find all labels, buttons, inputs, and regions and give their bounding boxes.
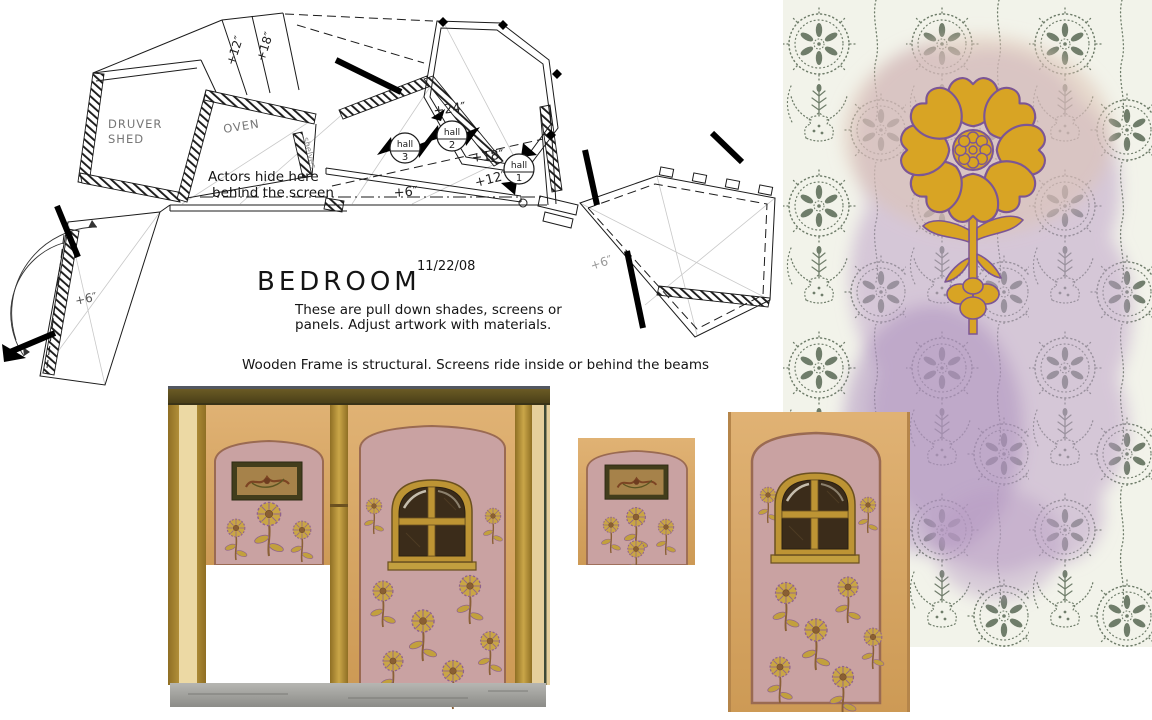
- center-post-joint: [330, 504, 348, 507]
- hall-number: 3: [402, 152, 408, 163]
- wall-elevation-right: [728, 405, 910, 712]
- room-label-shed: SHED: [108, 132, 144, 146]
- note-line-2: panels. Adjust artwork with materials.: [295, 317, 551, 333]
- right-elev-left-edge: [728, 412, 731, 712]
- dim-left-wing: +6″: [74, 290, 99, 308]
- note-line-3: Wooden Frame is structural. Screens ride…: [242, 357, 709, 373]
- hall-number: 2: [449, 140, 455, 151]
- scanned-set-design-page: hall 3 hall 2 hall 1 DRUVER SHED OVEN sh…: [0, 0, 1152, 720]
- edge-tabs: [659, 167, 772, 195]
- window-large: [388, 480, 476, 570]
- annotation-actors-1: Actors hide here: [208, 169, 319, 185]
- right-elev-right-edge: [907, 412, 910, 712]
- dim-right-wing: +6″: [589, 253, 615, 273]
- base-beam: [170, 683, 546, 707]
- top-beam-shadow: [168, 403, 550, 405]
- dim-corridor-right: +18″: [254, 30, 277, 63]
- hall-name: hall: [397, 140, 413, 150]
- date-label: 11/22/08: [417, 259, 475, 274]
- right-pilaster-panel: [532, 405, 550, 685]
- page-title: BEDROOM: [257, 267, 421, 297]
- annotation-actors-2: behind the screen: [212, 185, 334, 201]
- room-label-oven: OVEN: [222, 116, 260, 136]
- center-post: [330, 405, 348, 685]
- dim-corridor-left: +12″: [224, 34, 247, 67]
- right-edge-line: [544, 405, 547, 685]
- hall-name: hall: [444, 128, 460, 138]
- open-bay: [206, 565, 330, 685]
- floor-plan-sketch: hall 3 hall 2 hall 1 DRUVER SHED OVEN sh…: [0, 0, 782, 396]
- wall-elevation-detail: [578, 437, 695, 565]
- hall-name: hall: [511, 161, 527, 171]
- hall-marker-1: hall 1: [501, 143, 537, 195]
- left-pilaster-panel: [179, 405, 197, 685]
- note-line-1: These are pull down shades, screens or: [294, 302, 562, 318]
- hall-marker-3: hall 3: [377, 133, 433, 163]
- top-beam: [168, 389, 550, 405]
- right-pilaster: [515, 405, 532, 685]
- framed-picture: [232, 462, 302, 500]
- room-label-druver: DRUVER: [108, 117, 162, 131]
- hall-number: 1: [516, 173, 522, 184]
- detail-framed-picture: [605, 465, 668, 499]
- dim-base: +6″: [393, 184, 418, 201]
- window-right: [771, 473, 859, 563]
- wall-elevation-large: [168, 386, 550, 712]
